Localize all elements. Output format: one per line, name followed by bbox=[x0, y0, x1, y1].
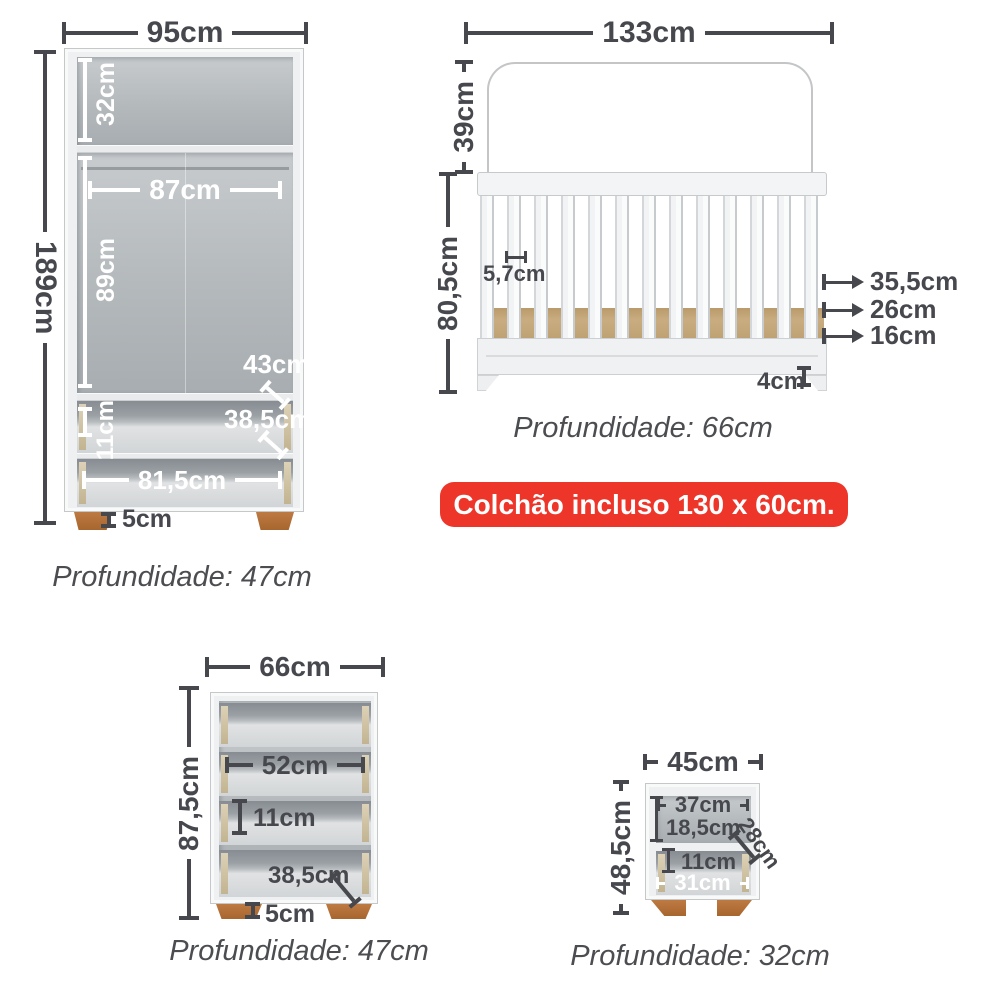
wardrobe-width-dimension: 95cm bbox=[62, 18, 308, 48]
dresser-drawer-width-label: 52cm bbox=[253, 752, 338, 778]
nightstand-foot-right bbox=[717, 900, 752, 916]
mattress-included-badge: Colchão incluso 130 x 60cm. bbox=[440, 482, 848, 527]
nightstand-height-label: 48,5cm bbox=[607, 791, 635, 904]
dresser-width-label: 66cm bbox=[250, 653, 340, 681]
wardrobe-width-label: 95cm bbox=[138, 18, 233, 48]
nightstand-height-dimension: 48,5cm bbox=[607, 780, 635, 915]
nightstand-niche-height-bracket bbox=[650, 796, 663, 842]
wardrobe-drawer-height-bracket bbox=[78, 407, 92, 437]
crib-headboard-height-label: 39cm bbox=[450, 72, 478, 162]
crib-mattress-height-arrow-1 bbox=[822, 274, 864, 290]
crib-base-height-bracket bbox=[797, 366, 811, 387]
nightstand-foot-left bbox=[651, 900, 686, 916]
crib-mattress-height-label-2: 26cm bbox=[870, 296, 937, 322]
crib-width-label: 133cm bbox=[593, 18, 704, 48]
wardrobe-inner-width-label: 87cm bbox=[140, 176, 230, 204]
nightstand-width-dimension: 45cm bbox=[643, 748, 763, 776]
wardrobe-feet-height-bracket bbox=[101, 512, 116, 528]
wardrobe-drawer-depth-label: 38,5cm bbox=[224, 406, 312, 432]
wardrobe-drawer-width-label: 81,5cm bbox=[129, 467, 235, 493]
wardrobe-top-shelf-label: 32cm bbox=[94, 62, 119, 126]
crib-width-dimension: 133cm bbox=[464, 18, 834, 48]
dresser-drawer-height-label: 11cm bbox=[253, 806, 316, 831]
furniture-dimensions-diagram: 95cm 189cm 32cm 87cm 89cm 43cm 38,5cm 11… bbox=[0, 0, 1000, 1000]
crib-rail-height-label: 80,5cm bbox=[434, 227, 462, 340]
wardrobe-inner-width-dimension: 87cm bbox=[88, 176, 282, 204]
crib-base-seam bbox=[486, 355, 818, 357]
crib-mattress-height-arrow-3 bbox=[822, 328, 864, 344]
wardrobe-inner-height-bracket bbox=[78, 156, 92, 388]
crib-rail-height-dimension: 80,5cm bbox=[434, 172, 462, 394]
nightstand-niche-width-label: 37cm bbox=[666, 794, 740, 816]
wardrobe-depth-label: Profundidade: 47cm bbox=[52, 561, 312, 594]
dresser-drawer-height-bracket bbox=[232, 799, 247, 835]
dresser-feet-height-bracket bbox=[245, 902, 260, 919]
wardrobe-inner-height-label: 89cm bbox=[94, 238, 119, 302]
nightstand-drawer-height-bracket bbox=[662, 848, 675, 873]
crib-foot-left bbox=[477, 375, 499, 391]
crib-top-rail bbox=[477, 172, 827, 196]
wardrobe-drawer-height-label: 11cm bbox=[94, 400, 118, 460]
dresser-depth-label: Profundidade: 47cm bbox=[169, 935, 429, 968]
nightstand-drawer-width-dimension: 31cm bbox=[656, 872, 749, 894]
dresser-drawer-1 bbox=[219, 703, 371, 747]
dresser-height-label: 87,5cm bbox=[175, 747, 203, 860]
mattress-included-text: Colchão incluso 130 x 60cm. bbox=[453, 489, 834, 521]
wardrobe-top-shelf-bracket bbox=[78, 58, 92, 142]
dresser-feet-height-label: 5cm bbox=[265, 902, 315, 927]
dresser-drawer-width-dimension: 52cm bbox=[225, 752, 365, 778]
wardrobe-feet-height-label: 5cm bbox=[122, 507, 172, 532]
dresser-width-dimension: 66cm bbox=[205, 653, 385, 681]
nightstand-niche-width-dimension: 37cm bbox=[657, 794, 749, 816]
crib-headboard-height-dimension: 39cm bbox=[450, 60, 478, 174]
wardrobe-height-dimension: 189cm bbox=[30, 50, 60, 525]
wardrobe-height-label: 189cm bbox=[30, 232, 60, 343]
crib-mattress-height-label-3: 16cm bbox=[870, 322, 937, 348]
nightstand-depth-label: Profundidade: 32cm bbox=[570, 940, 830, 973]
wardrobe-drawer-width-dimension: 81,5cm bbox=[82, 467, 282, 493]
nightstand-width-label: 45cm bbox=[658, 748, 748, 776]
wardrobe-shelf bbox=[77, 145, 293, 153]
dresser-height-dimension: 87,5cm bbox=[175, 686, 203, 920]
wardrobe-top-drawer-depth-label: 43cm bbox=[243, 351, 310, 377]
crib-mattress-height-arrow-2 bbox=[822, 302, 864, 318]
crib-depth-label: Profundidade: 66cm bbox=[513, 412, 773, 445]
wardrobe-foot-right bbox=[256, 512, 294, 530]
nightstand-drawer-width-label: 31cm bbox=[665, 872, 739, 894]
crib-slat-gap-label: 5,7cm bbox=[483, 263, 545, 285]
crib-mattress-height-label-1: 35,5cm bbox=[870, 268, 958, 294]
